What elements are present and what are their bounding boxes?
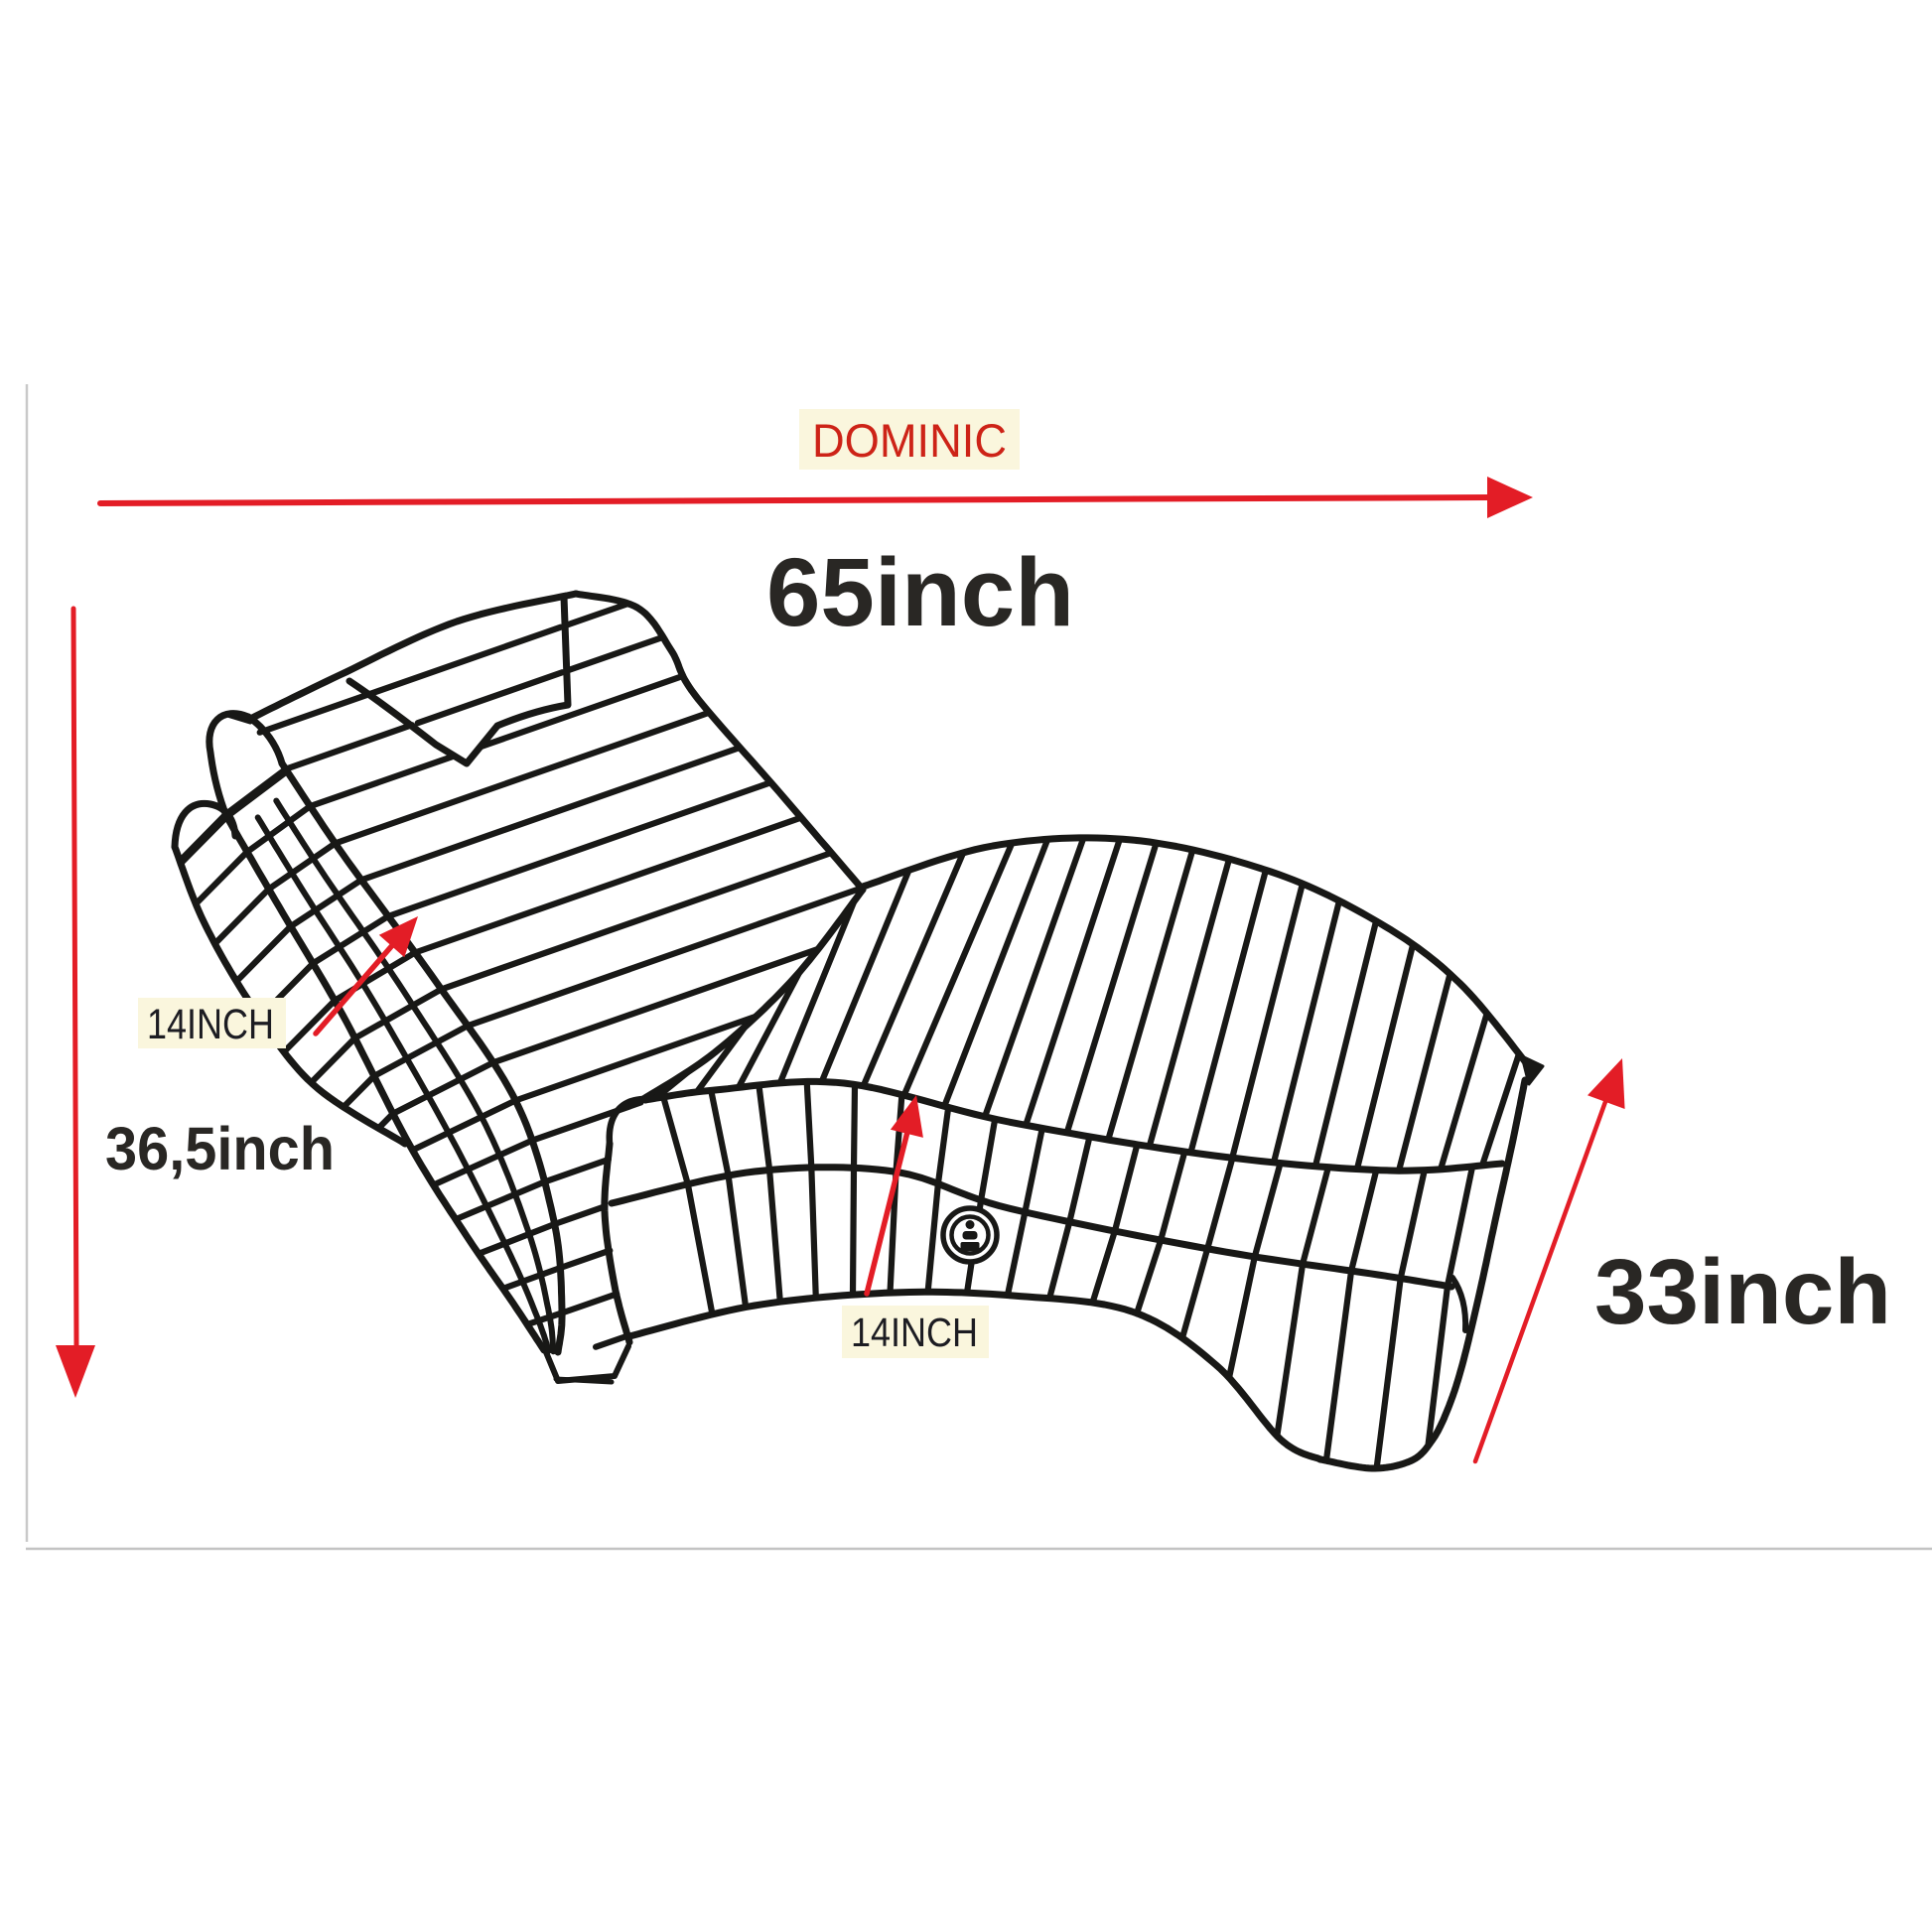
svg-text:65inch: 65inch xyxy=(766,538,1074,646)
svg-text:14INCH: 14INCH xyxy=(147,1001,274,1048)
svg-text:DOMINIC: DOMINIC xyxy=(812,414,1007,467)
svg-text:33inch: 33inch xyxy=(1594,1240,1891,1343)
svg-text:36,5inch: 36,5inch xyxy=(105,1115,335,1182)
svg-text:14INCH: 14INCH xyxy=(851,1310,978,1355)
